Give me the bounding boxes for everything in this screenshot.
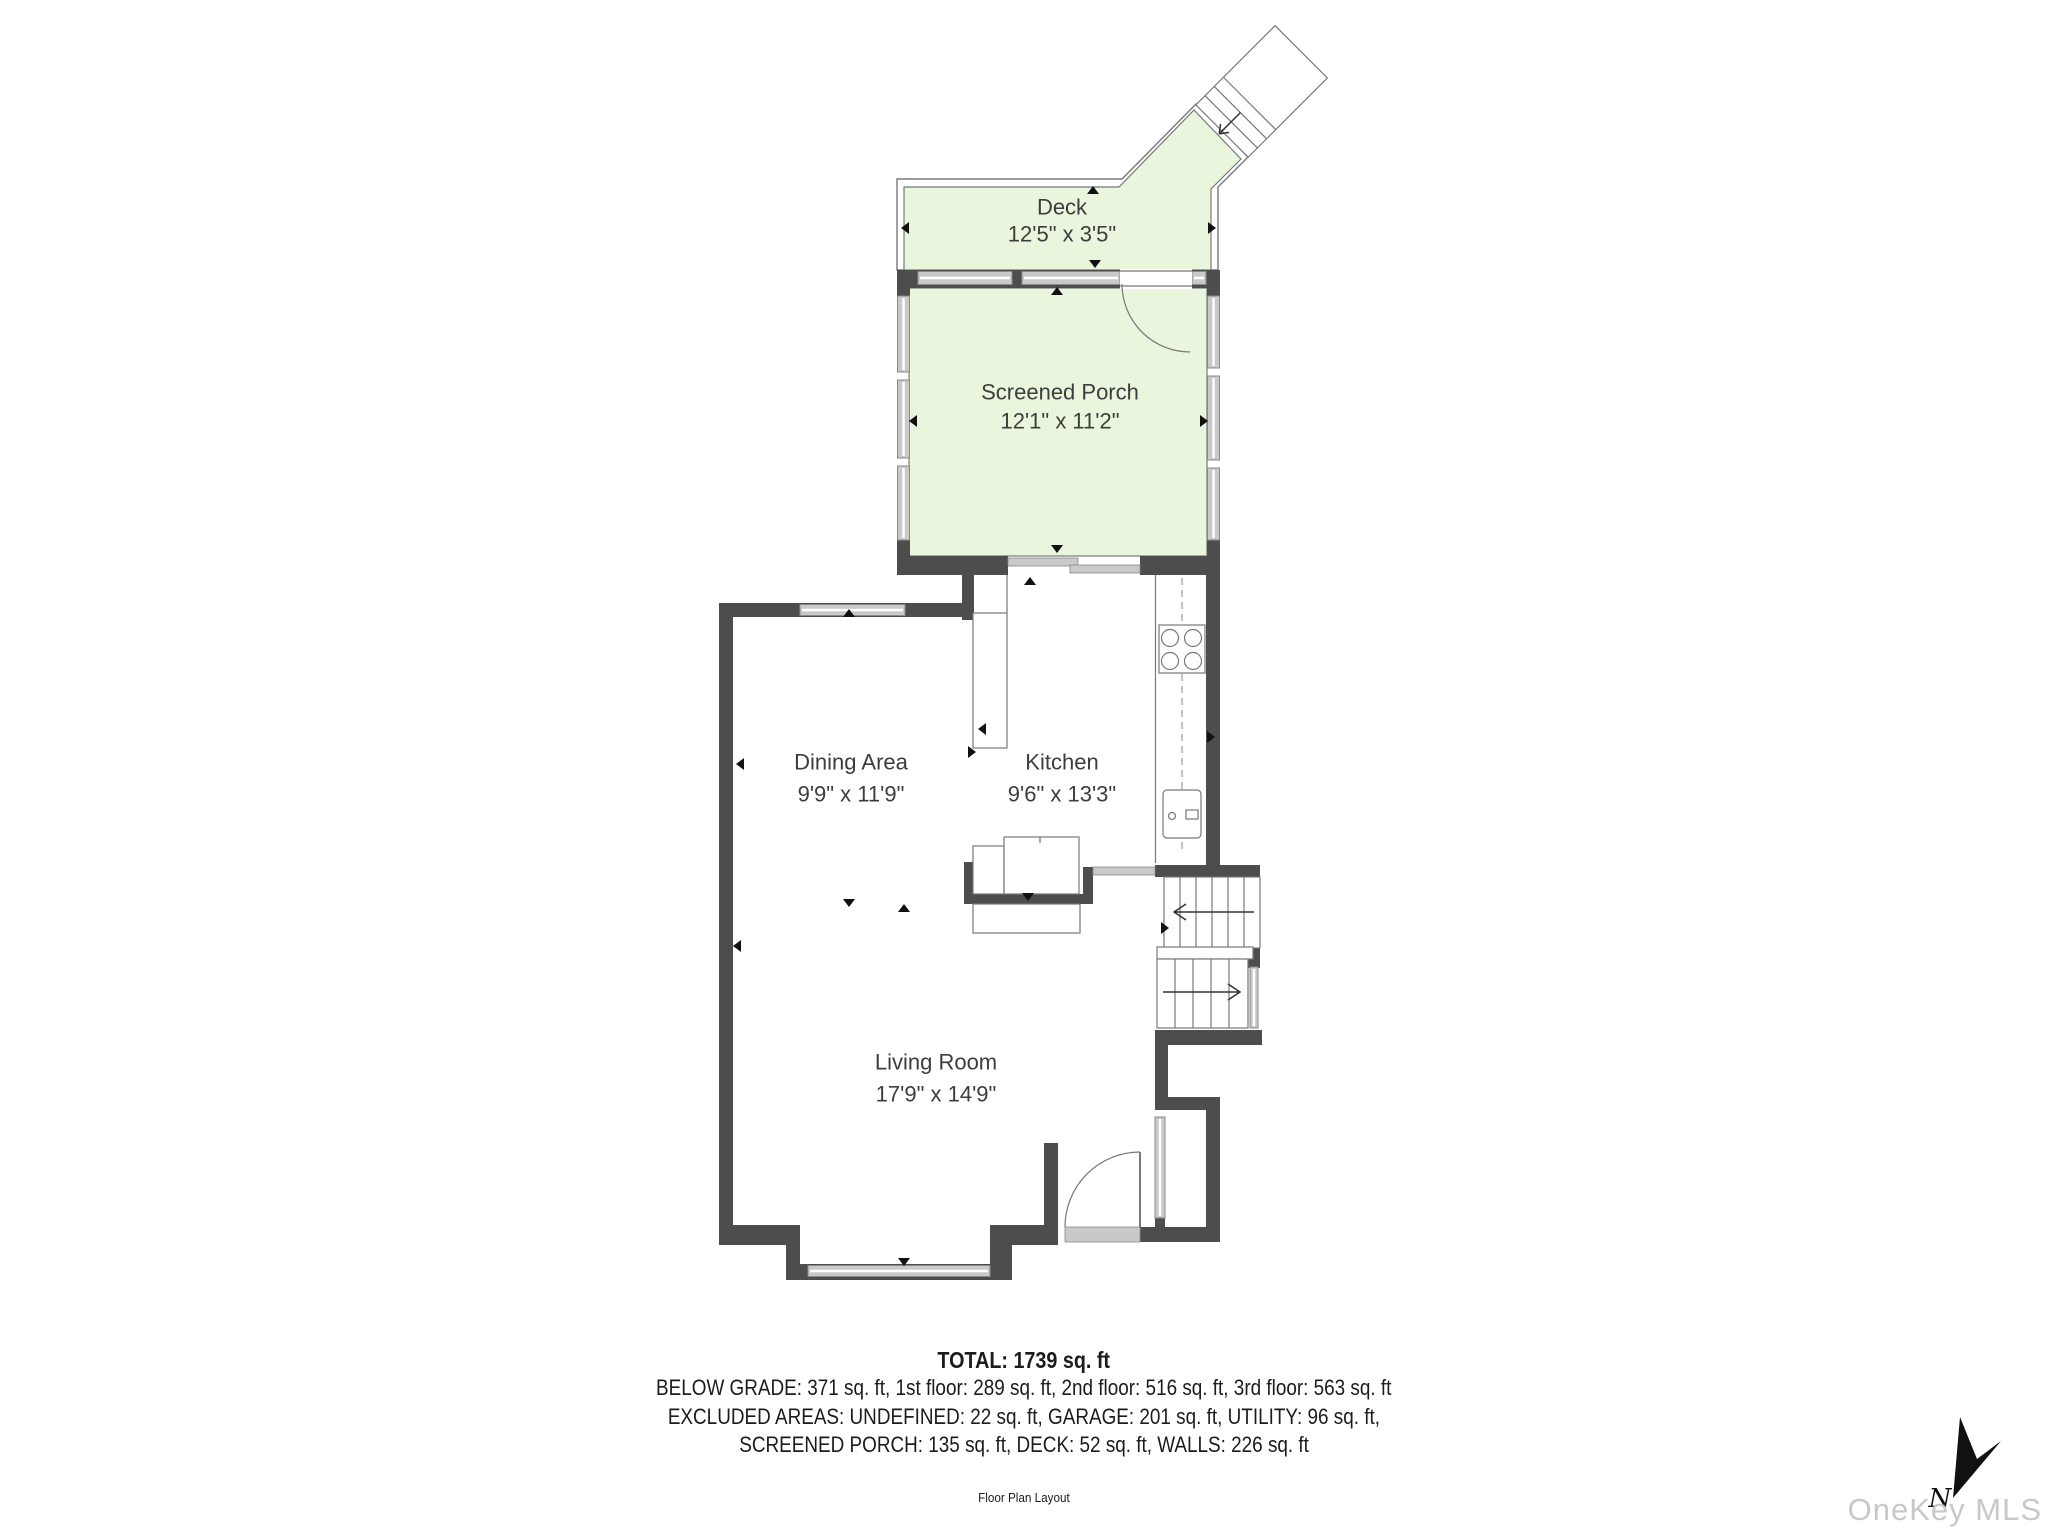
plan-caption-text: Floor Plan Layout	[978, 1484, 1070, 1512]
summary-porch-deck-text: SCREENED PORCH: 135 sq. ft, DECK: 52 sq.…	[739, 1431, 1309, 1459]
pantry-cabinet	[973, 613, 1007, 748]
summary-excluded: EXCLUDED AREAS: UNDEFINED: 22 sq. ft, GA…	[0, 1403, 2048, 1431]
kitchen-dimensions: 9'6" x 13'3"	[1008, 782, 1116, 807]
onekey-mls-watermark: OneKey MLS	[1848, 1492, 2042, 1528]
porch-bottom-wall	[1140, 556, 1220, 575]
kitchen-label: Kitchen	[1025, 750, 1098, 775]
deck-label: Deck	[1037, 195, 1088, 220]
kitchen-right-wall	[1206, 575, 1220, 865]
entry-door-threshold	[1065, 1227, 1140, 1242]
left-exterior-wall	[719, 603, 733, 1245]
dining-area-dimensions: 9'9" x 11'9"	[798, 782, 905, 807]
deck-dimensions: 12'5" x 3'5"	[1008, 222, 1116, 247]
bottom-left-wall	[719, 1225, 800, 1245]
entry-partition-wall	[1044, 1143, 1058, 1245]
summary-excluded-text: EXCLUDED AREAS: UNDEFINED: 22 sq. ft, GA…	[668, 1403, 1380, 1431]
area-summary: TOTAL: 1739 sq. ft BELOW GRADE: 371 sq. …	[0, 1346, 2048, 1512]
marker-icon	[736, 758, 744, 770]
firebox-left	[973, 846, 1004, 894]
entry-door-swing-arc	[1065, 1152, 1140, 1227]
summary-total: TOTAL: 1739 sq. ft	[0, 1346, 2048, 1374]
hearth	[973, 904, 1080, 933]
hall-half-wall	[1093, 867, 1155, 875]
bottom-wall-segment	[1012, 1225, 1045, 1245]
stair-bottom-wall	[1155, 1030, 1262, 1045]
bay-step-wall	[990, 1225, 1012, 1280]
sliding-door-panel	[1070, 565, 1140, 573]
summary-floors-text: BELOW GRADE: 371 sq. ft, 1st floor: 289 …	[656, 1374, 1391, 1402]
stove	[1159, 625, 1205, 673]
sidelight-end-block	[1155, 1218, 1165, 1227]
firebox-main	[1004, 837, 1079, 894]
marker-icon	[733, 940, 741, 952]
interior-stairs	[1157, 877, 1260, 1028]
entry-door	[1065, 1152, 1140, 1227]
living-room-dimensions: 17'9" x 14'9"	[876, 1082, 997, 1107]
dining-area-label: Dining Area	[794, 750, 909, 775]
screened-porch-label: Screened Porch	[981, 380, 1139, 405]
closet-right-wall	[1206, 1097, 1220, 1242]
summary-total-text: TOTAL: 1739 sq. ft	[938, 1346, 1111, 1374]
hall-wall-segment	[1155, 1045, 1168, 1097]
living-room-label: Living Room	[875, 1050, 997, 1075]
summary-porch-deck: SCREENED PORCH: 135 sq. ft, DECK: 52 sq.…	[0, 1431, 2048, 1459]
porch-bottom-wall	[897, 556, 1008, 575]
porch-dining-jog-wall	[962, 575, 974, 620]
floor-plan-drawing: Deck 12'5" x 3'5" Screened Porch 12'1" x…	[0, 0, 2048, 1536]
marker-icon	[1024, 577, 1036, 585]
closet-top-wall	[1155, 1097, 1220, 1110]
screened-porch-dimensions: 12'1" x 11'2"	[1000, 409, 1119, 434]
fireplace	[973, 837, 1080, 933]
plan-caption: Floor Plan Layout	[0, 1484, 2048, 1512]
summary-floors: BELOW GRADE: 371 sq. ft, 1st floor: 289 …	[0, 1374, 2048, 1402]
marker-icon	[843, 899, 855, 907]
stair-landing-divider	[1157, 947, 1253, 959]
kitchen-fixtures	[973, 575, 1205, 863]
lower-stair-flight	[1157, 959, 1248, 1028]
stair-top-wall	[1155, 865, 1260, 877]
sliding-door-panel	[1008, 558, 1078, 566]
marker-icon	[898, 904, 910, 912]
fireplace-right-wall	[1083, 867, 1093, 904]
